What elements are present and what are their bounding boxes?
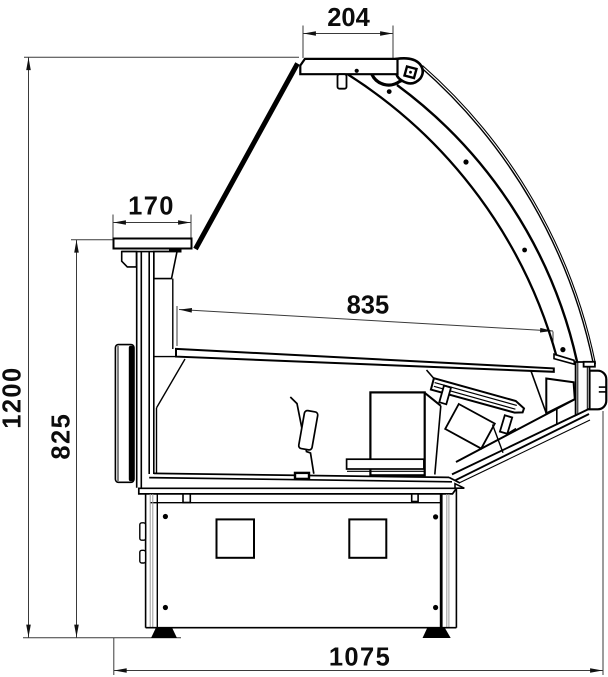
svg-text:1075: 1075 <box>329 644 391 672</box>
svg-text:1200: 1200 <box>0 366 27 428</box>
svg-text:170: 170 <box>128 193 175 221</box>
svg-text:825: 825 <box>47 413 75 460</box>
svg-text:204: 204 <box>327 4 370 32</box>
svg-text:835: 835 <box>347 292 390 320</box>
